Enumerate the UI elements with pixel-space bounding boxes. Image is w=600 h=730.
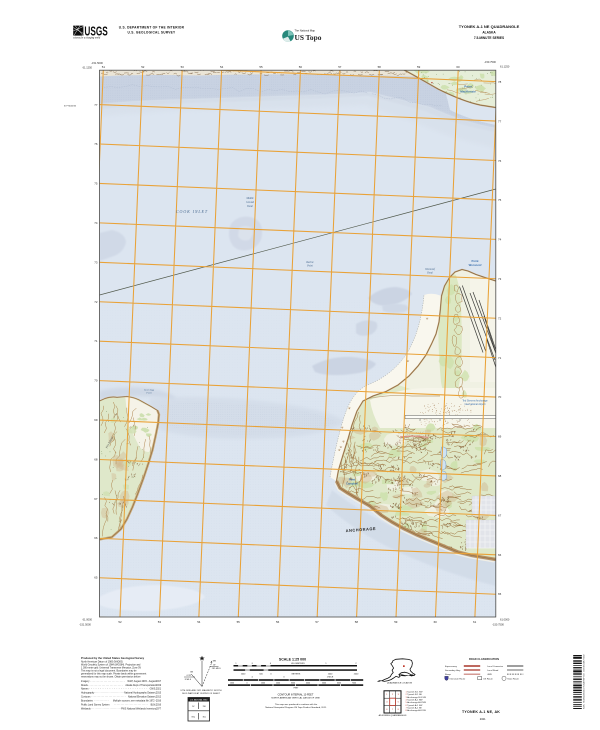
svg-text:54: 54 — [220, 65, 224, 69]
svg-text:55: 55 — [237, 620, 241, 624]
svg-text:66: 66 — [94, 536, 98, 540]
svg-text:75: 75 — [498, 198, 502, 202]
svg-text:UTM GRID AND 2021 MAGNETIC NOR: UTM GRID AND 2021 MAGNETIC NORTH — [181, 689, 222, 692]
svg-text:0: 0 — [270, 663, 272, 665]
svg-text:The National Map: The National Map — [295, 29, 316, 33]
svg-text:74: 74 — [94, 221, 98, 225]
svg-text:U.S. DEPARTMENT OF THE INTERIO: U.S. DEPARTMENT OF THE INTERIOR — [119, 25, 185, 29]
svg-text:Ramp: Ramp — [445, 674, 452, 676]
svg-text:··························: ·························· — [91, 708, 122, 710]
svg-text:59: 59 — [417, 65, 421, 69]
svg-text:76: 76 — [498, 159, 502, 163]
svg-text:Wetlands: Wetlands — [81, 707, 91, 710]
svg-text:generalized for this map scale: generalized for this map scale. Private … — [81, 673, 147, 676]
svg-text:North American Datum of 1983 (: North American Datum of 1983 (NAD83) — [81, 660, 123, 663]
svg-text:58: 58 — [355, 620, 359, 624]
svg-text:NQ: NQ — [203, 717, 206, 719]
svg-text:Expressway: Expressway — [445, 665, 458, 668]
svg-text:MQ: MQ — [192, 717, 196, 719]
svg-text:Middle: Middle — [245, 197, 254, 200]
svg-text:··························: ·························· — [88, 689, 149, 691]
svg-text:··························: ·························· — [95, 693, 124, 695]
svg-text:67: 67 — [498, 513, 502, 517]
svg-text:500: 500 — [259, 673, 263, 675]
svg-text:67: 67 — [94, 497, 98, 501]
svg-text:National Geospatial Program US: National Geospatial Program US Topo Prod… — [265, 706, 327, 709]
svg-text:5W: 5W — [203, 706, 206, 708]
svg-text:54: 54 — [197, 620, 201, 624]
svg-text:61.0000: 61.0000 — [500, 617, 510, 621]
svg-text:1000: 1000 — [328, 673, 333, 675]
svg-text:-150.7500: -150.7500 — [492, 622, 504, 626]
svg-text:69: 69 — [498, 435, 502, 439]
svg-text:ALASKA: ALASKA — [482, 31, 496, 35]
svg-text:5000: 5000 — [322, 682, 326, 684]
svg-text:1000: 1000 — [241, 673, 246, 675]
svg-text:US Topo: US Topo — [295, 33, 322, 42]
svg-text:71: 71 — [498, 356, 502, 360]
svg-text:KILOMETERS: KILOMETERS — [291, 663, 305, 665]
svg-text:16°: 16° — [213, 665, 216, 667]
svg-text:Racine: Racine — [305, 261, 314, 264]
svg-text:1000: 1000 — [230, 682, 234, 684]
svg-text:2015: 2015 — [156, 693, 162, 695]
svg-text:56: 56 — [299, 65, 303, 69]
svg-text:Point: Point — [464, 85, 472, 89]
svg-text:-151.5000: -151.5000 — [91, 61, 103, 65]
svg-text:8 MILS: 8 MILS — [185, 679, 192, 681]
svg-text:NORTH AMERICAN VERTICAL DATUM: NORTH AMERICAN VERTICAL DATUM OF 1988 — [271, 697, 320, 700]
svg-text:.5: .5 — [251, 663, 254, 665]
svg-text:1 MILE: 1 MILE — [327, 677, 334, 679]
svg-text:QUADRANGLE LOCATION: QUADRANGLE LOCATION — [387, 682, 413, 685]
svg-text:2016: 2016 — [156, 705, 162, 707]
svg-text:77: 77 — [94, 103, 98, 107]
svg-text:52: 52 — [118, 620, 122, 624]
svg-text:76: 76 — [94, 142, 98, 146]
svg-text:0: 0 — [246, 682, 247, 684]
svg-text:FWS National Wetlands Inven: FWS National Wetlands Inventory — [121, 707, 157, 710]
svg-text:285 MILS: 285 MILS — [212, 668, 222, 670]
svg-text:58: 58 — [378, 65, 382, 69]
svg-text:METERS: METERS — [292, 673, 301, 675]
svg-text:2017: 2017 — [156, 681, 162, 683]
svg-text:-151.5000: -151.5000 — [79, 622, 91, 626]
svg-text:National Elevation Dataset,: National Elevation Dataset, — [128, 696, 156, 699]
svg-text:Produced by the United States: Produced by the United States Geological… — [81, 656, 145, 660]
svg-text:61: 61 — [473, 620, 477, 624]
svg-text:Hydrography: Hydrography — [81, 692, 95, 695]
svg-text:Shoal: Shoal — [427, 272, 433, 275]
svg-text:2021: 2021 — [156, 689, 162, 691]
svg-text:74: 74 — [498, 238, 502, 242]
svg-text:Woronzof: Woronzof — [425, 268, 436, 271]
svg-text:Woronzof: Woronzof — [469, 263, 482, 267]
svg-text:TYONEK A-1 NE QUADRANGLE: TYONEK A-1 NE QUADRANGLE — [459, 24, 520, 29]
svg-text:2016: 2016 — [156, 701, 162, 703]
svg-text:ADJOINING QUADRANGLES: ADJOINING QUADRANGLES — [379, 714, 407, 717]
svg-text:Secondary Hwy: Secondary Hwy — [445, 669, 461, 672]
svg-text:··························: ·························· — [94, 701, 109, 703]
svg-text:75: 75 — [94, 182, 98, 186]
svg-text:Ground: Ground — [246, 201, 255, 204]
svg-text:U.S. GEOLOGICAL SURVEY: U.S. GEOLOGICAL SURVEY — [128, 31, 177, 35]
svg-text:0: 0 — [270, 673, 272, 675]
svg-text:68: 68 — [94, 457, 98, 461]
svg-text:61.1250: 61.1250 — [83, 66, 93, 70]
svg-text:7.5-MINUTE SERIES: 7.5-MINUTE SERIES — [474, 36, 504, 40]
svg-text:Multiple sources; see metad: Multiple sources; see metadata file 1972… — [113, 700, 156, 703]
svg-text:1000: 1000 — [261, 682, 265, 684]
svg-text:2021: 2021 — [480, 717, 486, 721]
svg-text:-150.7500: -150.7500 — [484, 60, 496, 64]
svg-text:4WD: 4WD — [487, 674, 492, 676]
svg-text:65: 65 — [498, 592, 502, 596]
svg-text:61.1250: 61.1250 — [500, 65, 510, 69]
svg-text:5 Anchorage A-8 NW: 5 Anchorage A-8 NW — [406, 701, 427, 704]
svg-text:State Route: State Route — [507, 677, 519, 680]
svg-text:NAIP, August 2015 - August: NAIP, August 2015 - August — [127, 680, 156, 683]
svg-text:60: 60 — [434, 620, 438, 624]
svg-text:GN: GN — [190, 671, 194, 673]
svg-text:This map is not a legal docume: This map is not a legal document. Bounda… — [81, 670, 137, 673]
svg-text:SCALE 1:25 000: SCALE 1:25 000 — [279, 658, 306, 662]
svg-text:2000: 2000 — [276, 682, 280, 684]
svg-text:reservations may not be shown.: reservations may not be shown. Obtain pe… — [81, 676, 141, 679]
svg-text:0: 0 — [283, 677, 285, 679]
svg-text:57: 57 — [315, 620, 319, 624]
svg-text:56: 56 — [276, 620, 280, 624]
svg-text:3 Anchorage B-8 SW: 3 Anchorage B-8 SW — [406, 696, 427, 699]
svg-text:68: 68 — [498, 474, 502, 478]
svg-text:2: 2 — [355, 663, 357, 665]
svg-text:MN: MN — [213, 661, 217, 663]
svg-text:TYONEK A-1 NE, AK: TYONEK A-1 NE, AK — [462, 710, 500, 714]
svg-text:57: 57 — [338, 65, 342, 69]
svg-text:··························: ·························· — [88, 685, 124, 687]
svg-text:International Airport: International Airport — [465, 403, 486, 406]
svg-text:COOK INLET: COOK INLET — [176, 209, 208, 214]
svg-text:6777000mN: 6777000mN — [64, 106, 76, 108]
svg-text:7 Tyonek A-1 SE: 7 Tyonek A-1 SE — [406, 707, 423, 710]
svg-text:Public Land Survey System: Public Land Survey System — [81, 704, 110, 707]
svg-text:4 Tyonek A-1 NW: 4 Tyonek A-1 NW — [406, 699, 424, 702]
svg-text:61.0000: 61.0000 — [83, 617, 93, 621]
svg-text:6000: 6000 — [337, 682, 341, 684]
svg-text:ROAD CLASSIFICATION: ROAD CLASSIFICATION — [469, 657, 499, 661]
svg-text:1977: 1977 — [156, 708, 162, 710]
svg-text:DECLINATION AT CENTER OF SHEET: DECLINATION AT CENTER OF SHEET — [182, 692, 221, 695]
svg-text:Shoal: Shoal — [247, 205, 253, 208]
svg-text:59: 59 — [394, 620, 398, 624]
svg-text:70: 70 — [498, 395, 502, 399]
svg-text:0°28': 0°28' — [187, 675, 192, 677]
svg-text:Imagery: Imagery — [81, 680, 90, 683]
svg-text:52: 52 — [141, 65, 145, 69]
svg-text:National Hydrography Dataset: National Hydrography Dataset, — [124, 692, 156, 695]
svg-text:77: 77 — [498, 119, 502, 123]
svg-text:U.S. NATIONAL GRID: U.S. NATIONAL GRID — [190, 699, 208, 702]
svg-text:4000: 4000 — [306, 682, 310, 684]
svg-text:US Route: US Route — [483, 677, 493, 680]
svg-text:··························: ·························· — [114, 705, 149, 707]
svg-text:72: 72 — [498, 316, 502, 320]
svg-text:NSN. 7643014656572 NGA REF: NSN. 7643014656572 NGA REF NO. USGSX24K7… — [583, 654, 586, 709]
svg-text:··························: ·························· — [91, 697, 127, 699]
svg-text:55: 55 — [259, 65, 263, 69]
svg-text:science for a changing world: science for a changing world — [73, 36, 101, 39]
svg-text:2 Tyonek B-1 SE: 2 Tyonek B-1 SE — [406, 694, 423, 696]
svg-text:Local Connector: Local Connector — [487, 665, 503, 668]
svg-text:Campbell: Campbell — [346, 481, 358, 485]
svg-text:CONTOUR INTERVAL 10 FEET: CONTOUR INTERVAL 10 FEET — [278, 693, 314, 696]
svg-text:8 Anchorage A-8 SW: 8 Anchorage A-8 SW — [406, 709, 427, 712]
svg-text:72: 72 — [94, 300, 98, 304]
svg-text:51: 51 — [102, 65, 106, 69]
svg-text:2019: 2019 — [156, 685, 162, 687]
svg-text:2012: 2012 — [156, 697, 162, 699]
svg-text:1: 1 — [235, 663, 237, 665]
svg-text:53: 53 — [158, 620, 162, 624]
svg-text:7000: 7000 — [352, 682, 356, 684]
svg-text:6 Tyonek A-1 SW: 6 Tyonek A-1 SW — [406, 704, 424, 707]
svg-text:Point: Point — [306, 265, 313, 268]
svg-text:Local Road: Local Road — [487, 670, 499, 672]
svg-text:53: 53 — [181, 65, 185, 69]
svg-text:Point: Point — [349, 478, 356, 482]
svg-text:Alaska Dept of Transportati: Alaska Dept of Transportation — [125, 684, 156, 687]
svg-text:Point: Point — [145, 392, 152, 395]
svg-text:Boundaries: Boundaries — [81, 700, 94, 703]
svg-text:66: 66 — [498, 553, 502, 557]
svg-text:.5: .5 — [251, 677, 254, 679]
svg-text:This map was produced to confo: This map was produced to conform with th… — [275, 703, 318, 706]
svg-text:2000: 2000 — [354, 673, 359, 675]
svg-text:78: 78 — [498, 80, 502, 84]
svg-text:65: 65 — [94, 576, 98, 580]
svg-text:··························: ·························· — [90, 681, 126, 683]
svg-text:73: 73 — [498, 277, 502, 281]
svg-text:MacKenzie: MacKenzie — [460, 90, 476, 94]
svg-text:1: 1 — [325, 663, 327, 665]
svg-text:3000: 3000 — [291, 682, 295, 684]
svg-text:69: 69 — [94, 418, 98, 422]
svg-text:Contours: Contours — [81, 696, 91, 699]
svg-text:60: 60 — [456, 65, 460, 69]
svg-text:World Geodetic System of 1984: World Geodetic System of 1984 (WGS84). P… — [81, 663, 141, 666]
svg-text:71: 71 — [94, 339, 98, 343]
svg-text:1 000-meter grid: Universal Tr: 1 000-meter grid: Universal Transverse M… — [81, 667, 141, 670]
svg-text:70: 70 — [94, 379, 98, 383]
svg-text:73: 73 — [94, 261, 98, 265]
svg-text:FEET: FEET — [294, 688, 300, 690]
svg-text:Interstate Route: Interstate Route — [450, 677, 466, 680]
